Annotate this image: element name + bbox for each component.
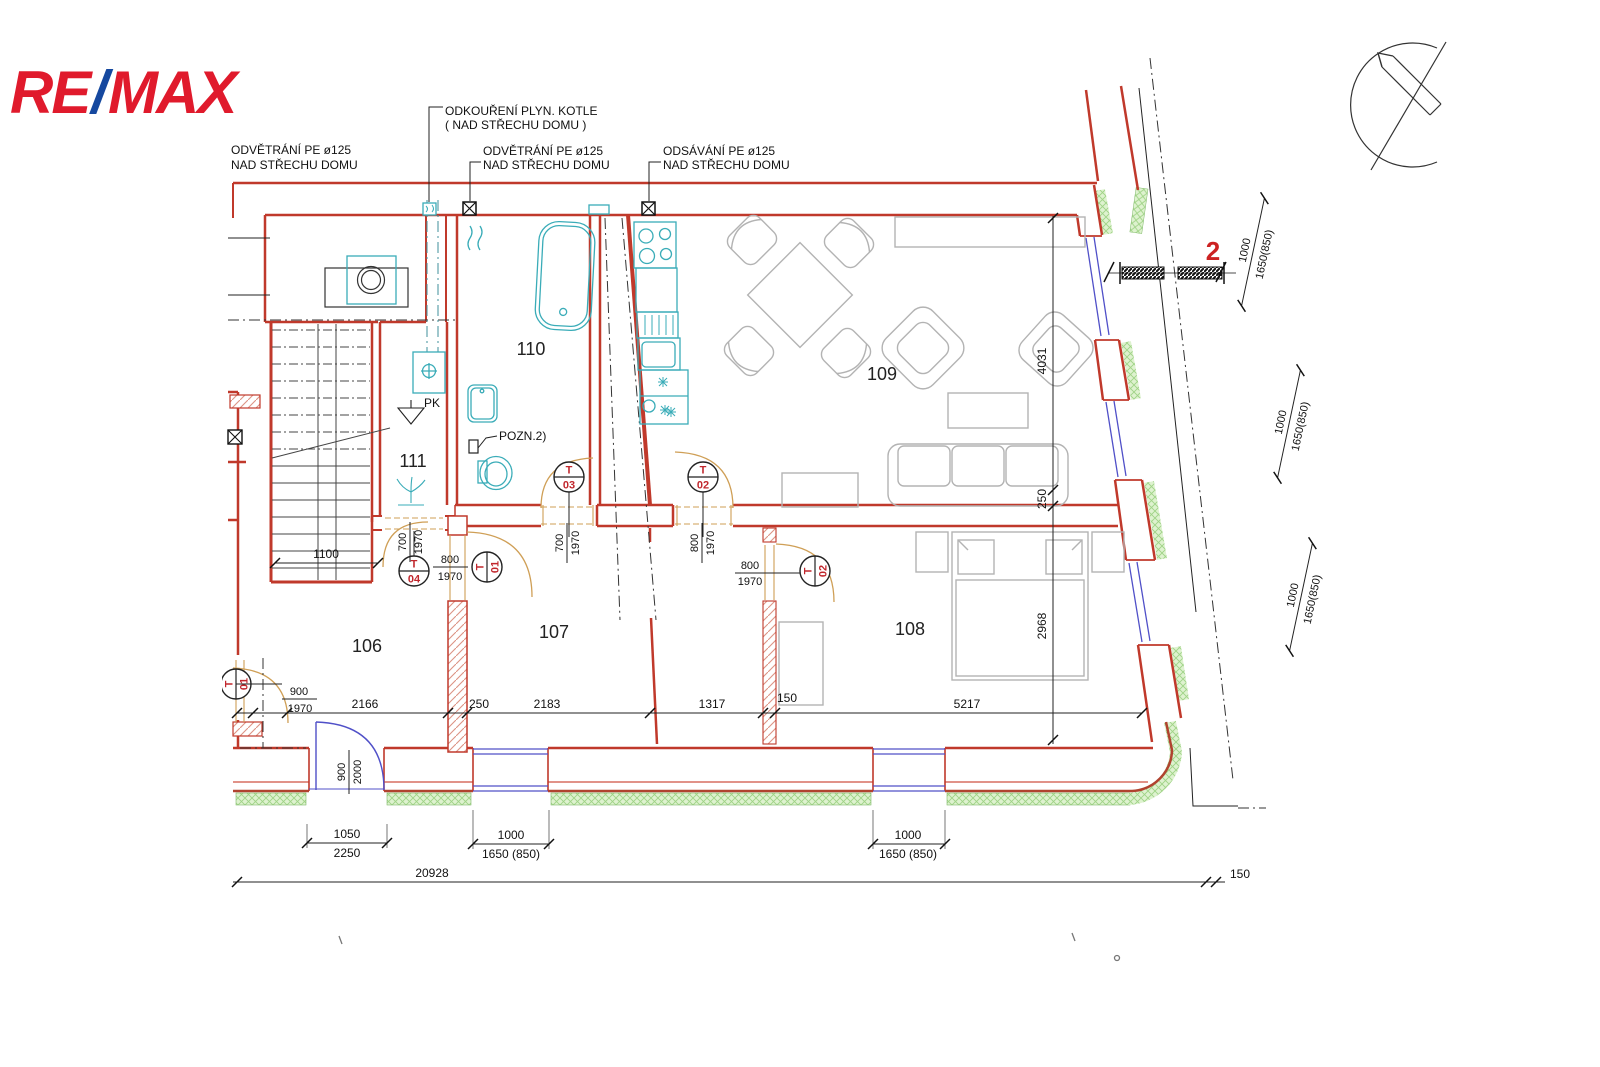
dim-5217: 5217: [954, 697, 981, 711]
dim-bluedoor-group: 900 2000: [336, 750, 364, 794]
svg-text:2000: 2000: [352, 760, 364, 784]
svg-text:T: T: [700, 465, 707, 477]
room-label-110: 110: [517, 339, 546, 359]
svg-text:02: 02: [697, 480, 709, 492]
room-label-107: 107: [539, 622, 569, 642]
dim-800-t01: 800: [441, 554, 459, 566]
svg-text:T: T: [475, 563, 487, 570]
dim-2968-group: 2968: [1035, 612, 1049, 639]
dim-150-wall: 150: [777, 691, 797, 705]
annotation-vent-line1: ODVĚTRÁNÍ PE ø125: [483, 143, 603, 158]
room-label-108: 108: [895, 619, 925, 639]
dim-t03-group: 700 1970: [554, 523, 582, 563]
svg-text:800: 800: [689, 534, 701, 552]
dim-1970-t01: 1970: [438, 571, 462, 583]
dim-1317: 1317: [699, 697, 726, 711]
dim-2183: 2183: [534, 697, 561, 711]
dim-2250: 2250: [334, 846, 361, 860]
floorplan-page: RE/MAX: [0, 0, 1600, 1067]
dim-250: 250: [469, 697, 489, 711]
annotation-boiler-line1: ODKOUŘENÍ PLYN. KOTLE: [445, 103, 597, 118]
dim-2166: 2166: [352, 697, 379, 711]
svg-text:700: 700: [554, 534, 566, 552]
dim-4031-group: 4031: [1035, 347, 1049, 374]
svg-text:T: T: [803, 567, 815, 574]
door-tag-t02-bedroom: T 02: [800, 556, 830, 586]
annotations: ODVĚTRÁNÍ PE ø125 NAD STŘECHU DOMU ODKOU…: [231, 103, 790, 443]
svg-text:1970: 1970: [570, 531, 582, 555]
room-labels: 106 107 108 109 110 111: [352, 339, 925, 656]
svg-text:700: 700: [397, 533, 409, 551]
annotation-exhaust-line2: NAD STŘECHU DOMU: [663, 157, 790, 172]
dim-150-end: 150: [1230, 867, 1250, 881]
annotation-exhaust-line1: ODSÁVÁNÍ PE ø125: [663, 143, 775, 158]
door-tag-t01: T 01: [472, 552, 502, 582]
svg-text:T: T: [224, 680, 236, 687]
svg-text:04: 04: [408, 574, 421, 586]
svg-text:250: 250: [1035, 489, 1049, 509]
svg-text:T: T: [411, 559, 418, 571]
utility-fixtures: [325, 256, 408, 307]
walls: [228, 86, 1181, 791]
annotation-vent-line2: NAD STŘECHU DOMU: [483, 157, 610, 172]
note-label: POZN.2): [499, 429, 546, 443]
right-dim-1: 1000 1650(850): [1227, 190, 1283, 314]
svg-text:1970: 1970: [413, 530, 425, 554]
dim-1650-right3: 1650(850): [1302, 574, 1324, 626]
dim-1000-b: 1000: [895, 828, 922, 842]
floorplan-drawing: 2: [0, 0, 1600, 1067]
dim-1050: 1050: [334, 827, 361, 841]
windows: [473, 237, 1150, 791]
svg-text:900: 900: [336, 763, 348, 781]
door-tag-t03: T 03: [554, 462, 584, 537]
annotation-left-line1: ODVĚTRÁNÍ PE ø125: [231, 142, 351, 157]
right-dim-2: 1000 1650(850): [1263, 362, 1319, 486]
annotation-boiler-line2: ( NAD STŘECHU DOMU ): [445, 117, 586, 132]
svg-text:01: 01: [490, 561, 502, 573]
left-crop-mask: [200, 650, 222, 718]
svg-text:1970: 1970: [705, 531, 717, 555]
annotation-left-line2: NAD STŘECHU DOMU: [231, 157, 358, 172]
dim-1970-left: 1970: [288, 703, 312, 715]
crop-marks: [339, 933, 1120, 961]
dim-20928: 20928: [415, 866, 449, 880]
svg-text:4031: 4031: [1035, 347, 1049, 374]
section-number: 2: [1206, 236, 1220, 266]
door-tag-t02-corridor: T 02: [688, 462, 718, 537]
right-dim-3: 1000 1650(850): [1275, 535, 1331, 659]
pk-label: PK: [424, 396, 440, 410]
svg-text:03: 03: [563, 480, 575, 492]
dim-1970-t02b: 1970: [738, 576, 762, 588]
dim-900-left: 900: [290, 686, 308, 698]
room-label-111: 111: [399, 451, 426, 471]
svg-text:2968: 2968: [1035, 612, 1049, 639]
dim-1100: 1100: [313, 547, 339, 561]
dim-250v-group: 250: [1035, 489, 1049, 509]
dim-800-t02b: 800: [741, 560, 759, 572]
section-mark: 2: [1104, 236, 1236, 284]
north-arrow-icon: [1351, 42, 1446, 170]
dim-1000-a: 1000: [498, 828, 525, 842]
dim-1650-right2: 1650(850): [1290, 401, 1312, 453]
svg-text:02: 02: [818, 565, 830, 577]
dim-1650-right1: 1650(850): [1254, 229, 1276, 281]
room-label-106: 106: [352, 636, 382, 656]
dim-1650-b: 1650 (850): [879, 847, 937, 861]
room-label-109: 109: [867, 364, 897, 384]
dim-1650-a: 1650 (850): [482, 847, 540, 861]
svg-text:T: T: [566, 465, 573, 477]
